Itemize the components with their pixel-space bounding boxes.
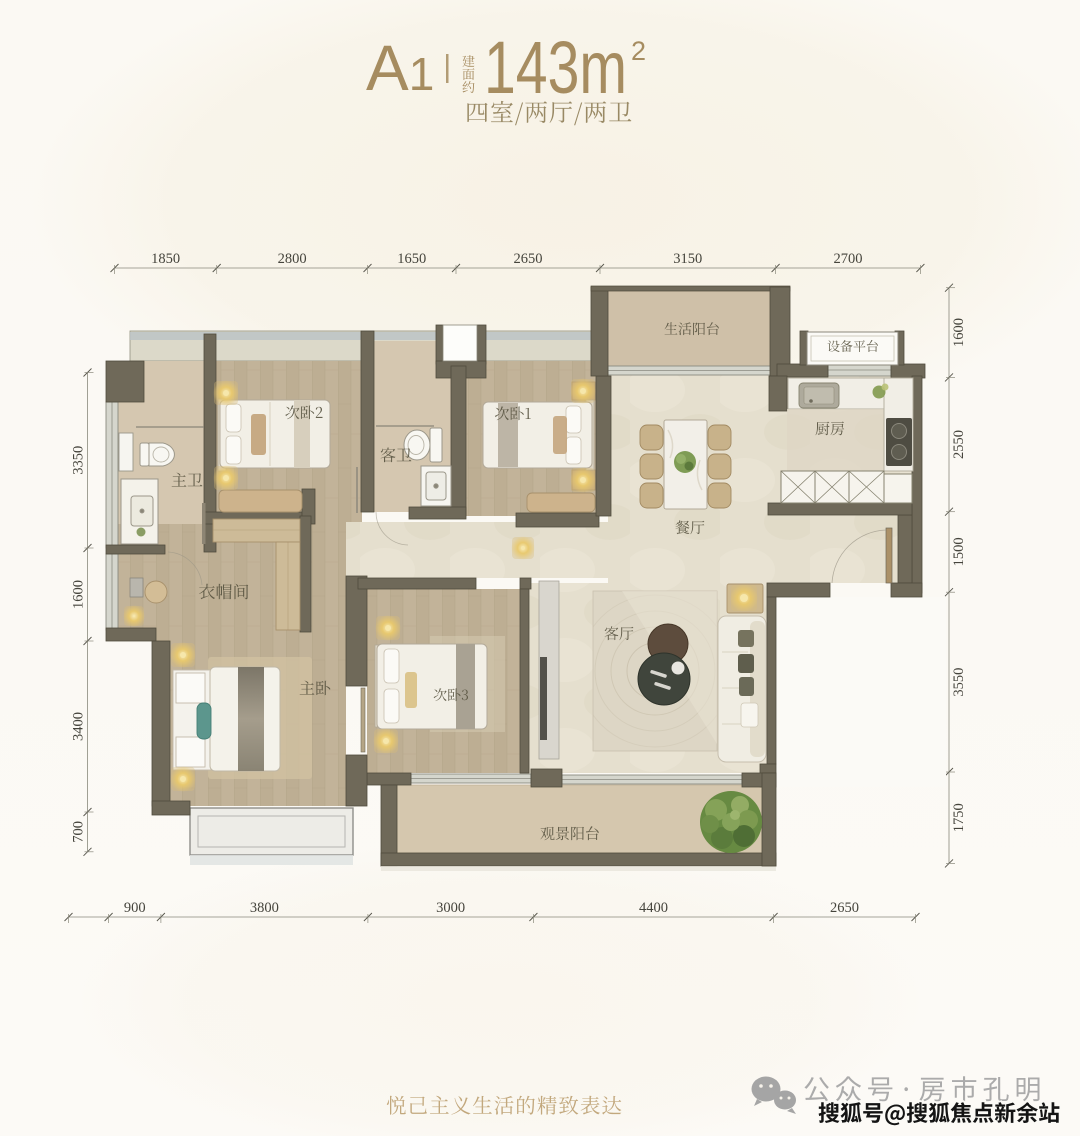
svg-text:1750: 1750: [951, 803, 967, 832]
svg-text:3800: 3800: [250, 900, 279, 916]
svg-text:1500: 1500: [951, 537, 967, 566]
svg-text:3550: 3550: [951, 668, 967, 697]
svg-text:143m: 143m: [484, 26, 627, 109]
svg-text:2: 2: [631, 36, 646, 66]
svg-text:3400: 3400: [71, 712, 87, 741]
svg-text:1650: 1650: [397, 251, 426, 267]
svg-text:2800: 2800: [278, 251, 307, 267]
svg-text:700: 700: [71, 821, 87, 843]
svg-text:1600: 1600: [951, 318, 967, 347]
svg-text:3000: 3000: [436, 900, 465, 916]
svg-text:4400: 4400: [639, 900, 668, 916]
svg-text:1600: 1600: [71, 580, 87, 609]
svg-text:1850: 1850: [151, 251, 180, 267]
svg-text:3350: 3350: [71, 446, 87, 475]
svg-text:2550: 2550: [951, 430, 967, 459]
svg-text:2650: 2650: [830, 900, 859, 916]
svg-text:900: 900: [124, 900, 146, 916]
svg-text:2700: 2700: [834, 251, 863, 267]
svg-text:2650: 2650: [514, 251, 543, 267]
svg-text:3150: 3150: [673, 251, 702, 267]
